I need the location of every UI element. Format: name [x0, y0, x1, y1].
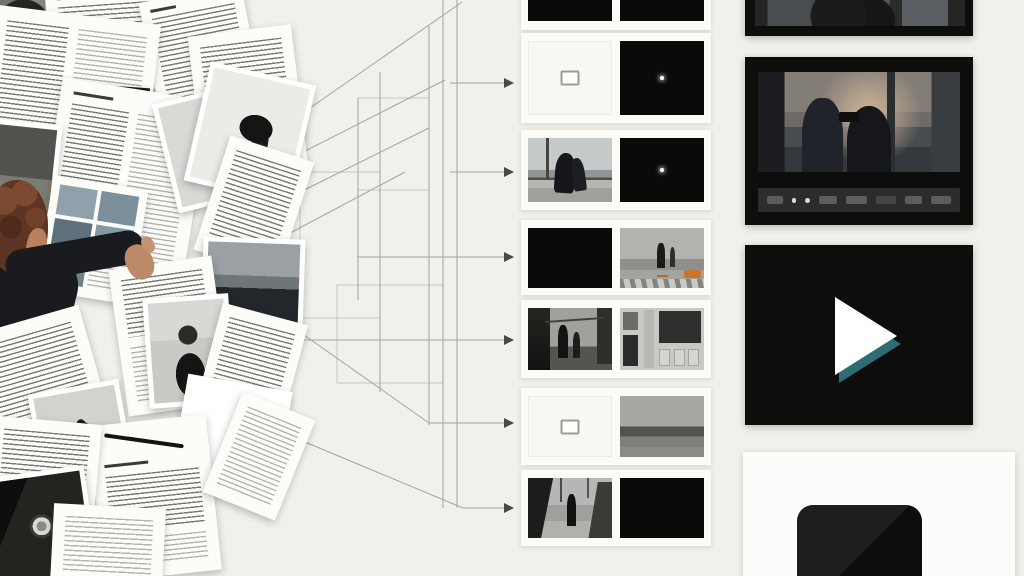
storyboard-row [521, 300, 711, 378]
source-pile-collage [0, 0, 330, 576]
frame-black [620, 0, 704, 21]
video-placeholder [745, 245, 973, 425]
frame-black [528, 228, 612, 288]
toolbar-control[interactable] [905, 196, 923, 204]
document-page [50, 503, 166, 576]
frame-black [528, 0, 612, 21]
toolbar-dot-control[interactable] [792, 198, 797, 203]
frame-photo-platform [528, 478, 612, 538]
app-logo [797, 505, 922, 576]
toolbar-control[interactable] [931, 196, 951, 204]
storyboard-row [521, 388, 711, 465]
film-strip-image [755, 0, 965, 26]
logo-card [743, 452, 1015, 576]
silhouette-person [802, 98, 842, 172]
play-button[interactable] [745, 245, 973, 425]
frame-blank-placeholder [528, 396, 612, 457]
flow-arrow-icon [504, 78, 514, 513]
toolbar-control[interactable] [846, 196, 867, 204]
taxi-accent [684, 270, 701, 278]
image-placeholder-icon [561, 419, 580, 434]
camera-icon [839, 112, 859, 122]
frame-black-dot [620, 138, 704, 202]
illustration-canvas [0, 0, 1024, 576]
frame-photo-street [620, 228, 704, 288]
storyboard-row [521, 0, 711, 30]
storyboard-row [521, 33, 711, 123]
frame-photo-gallery-wall [620, 308, 704, 370]
toolbar-control[interactable] [819, 196, 837, 204]
storyboard-row [521, 220, 711, 295]
toolbar-control[interactable] [876, 196, 896, 204]
frame-black-dot [620, 41, 704, 115]
frame-black [620, 478, 704, 538]
highlight-dot [660, 76, 664, 80]
image-placeholder-icon [561, 71, 580, 86]
storyboard-row [521, 130, 711, 210]
highlight-dot [660, 168, 664, 172]
video-player [745, 57, 973, 225]
frame-photo-couple [528, 138, 612, 202]
video-still [758, 72, 960, 172]
toolbar-control[interactable] [767, 196, 783, 204]
storyboard-row [521, 470, 711, 546]
frame-photo-lake [620, 396, 704, 457]
film-frame-partial [745, 0, 973, 36]
frame-photo-industrial [528, 308, 612, 370]
toolbar-dot-control[interactable] [805, 198, 810, 203]
pen [104, 433, 184, 448]
player-toolbar [758, 188, 960, 212]
frame-blank-placeholder [528, 41, 612, 115]
